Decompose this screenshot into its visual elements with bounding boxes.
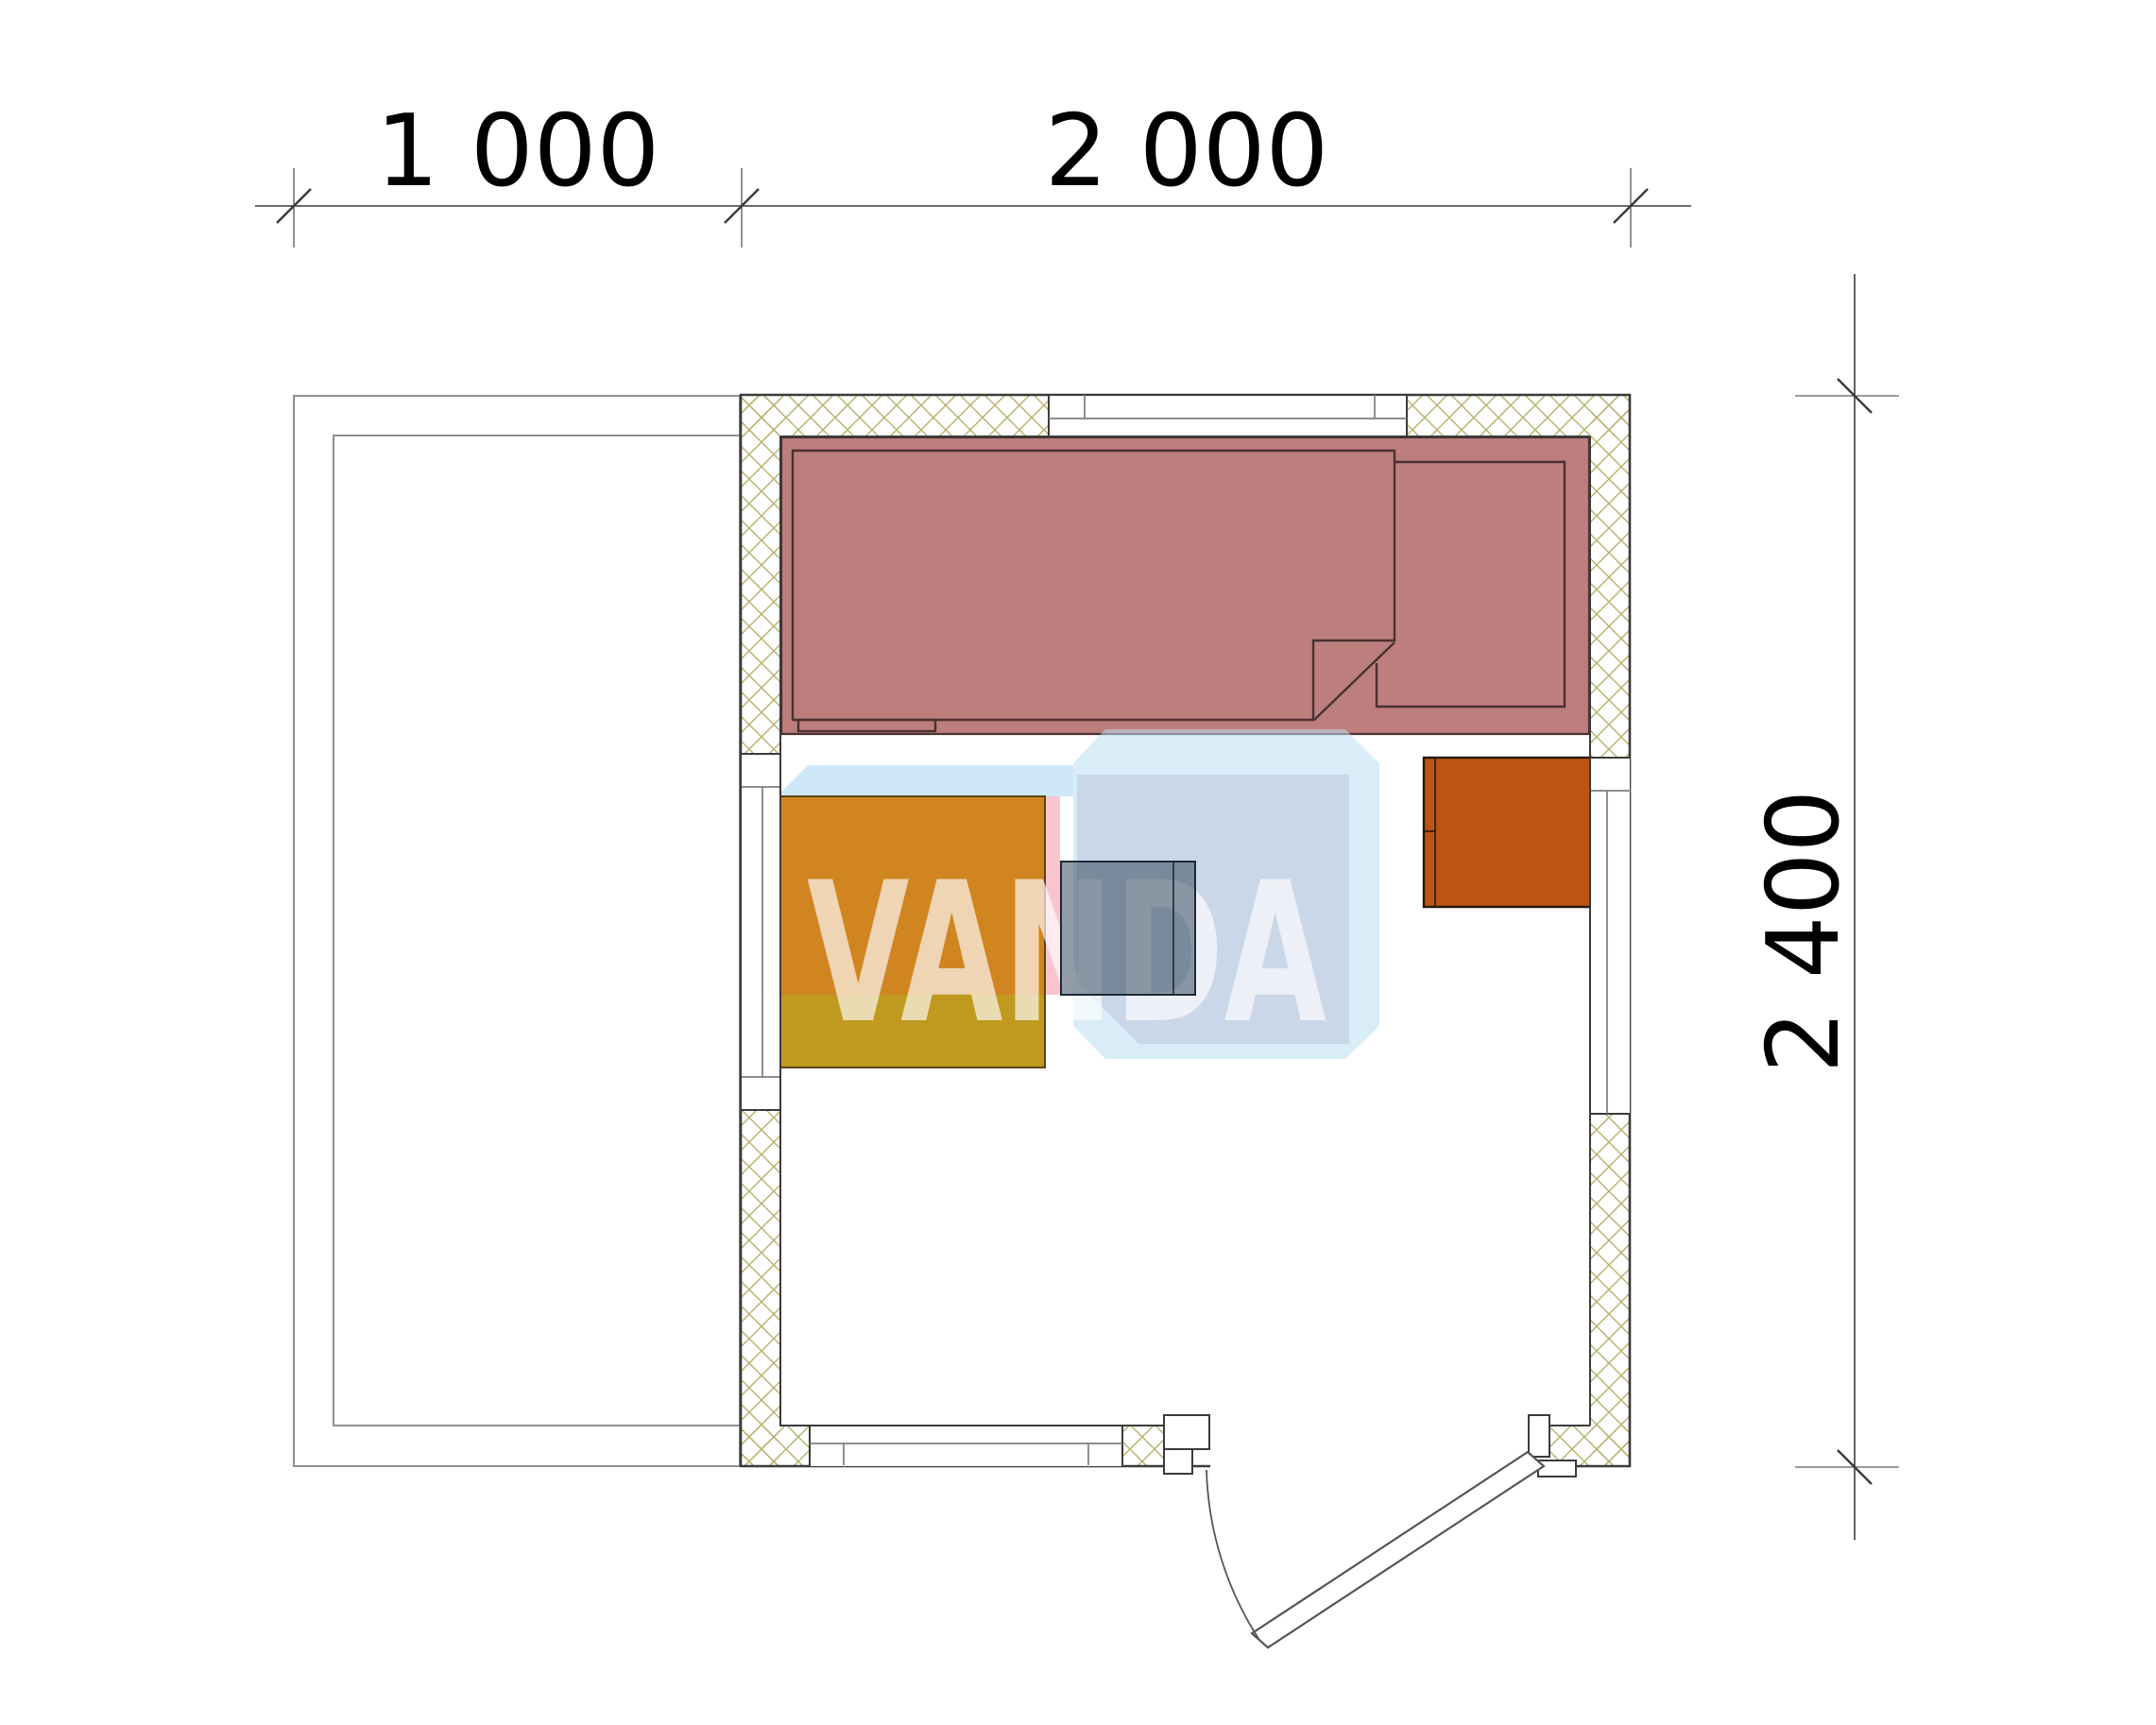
terrace-outer-outline xyxy=(294,396,740,1466)
door xyxy=(1164,1415,1576,1648)
floor-plan-canvas: VANDA xyxy=(0,0,2156,1725)
door-swing-arc xyxy=(1206,1470,1259,1640)
wall-bottom-left-segment xyxy=(740,1426,810,1467)
door-jamb-left-block xyxy=(1164,1415,1209,1449)
dimension-label-2400: 2 400 xyxy=(1746,790,1861,1074)
wall-right-lower-segment xyxy=(1591,1114,1631,1467)
terrace xyxy=(294,396,740,1466)
stove-body xyxy=(1061,862,1195,995)
cabinet xyxy=(1424,758,1592,907)
door-jamb-right-block xyxy=(1529,1415,1549,1457)
window-right xyxy=(1591,758,1631,1114)
sauna-platform xyxy=(781,437,1589,734)
wall-right-upper-segment xyxy=(1591,394,1631,758)
platform-fill xyxy=(781,437,1589,734)
terrace-inner-outline xyxy=(334,436,740,1426)
window-top xyxy=(1049,395,1407,436)
floor-plan-drawing: VANDA xyxy=(0,0,2156,1725)
dimension-label-2000: 2 000 xyxy=(1045,94,1329,209)
wall-bottom-mid-segment xyxy=(1122,1426,1164,1467)
window-right-opening xyxy=(1591,758,1630,1114)
dimension-top: 1 000 2 000 xyxy=(255,94,1691,248)
door-jamb-left-step xyxy=(1164,1449,1192,1474)
cabinet-body xyxy=(1424,758,1592,907)
watermark-cube-top-left-face xyxy=(777,765,1073,796)
wall-left-upper-segment xyxy=(740,394,779,754)
window-bottom-opening xyxy=(810,1426,1122,1466)
window-left xyxy=(740,754,779,1110)
dimension-label-1000: 1 000 xyxy=(376,94,660,209)
window-top-opening xyxy=(1049,396,1407,436)
wall-top-left-segment xyxy=(742,394,1049,436)
window-bottom xyxy=(810,1426,1122,1466)
door-jamb-right-step xyxy=(1538,1460,1576,1477)
wall-left-lower-segment xyxy=(740,1110,779,1467)
door-leaf xyxy=(1252,1452,1544,1648)
dimension-right: 2 400 xyxy=(1746,274,1899,1540)
window-left-opening xyxy=(742,754,779,1110)
stove xyxy=(1061,862,1195,995)
